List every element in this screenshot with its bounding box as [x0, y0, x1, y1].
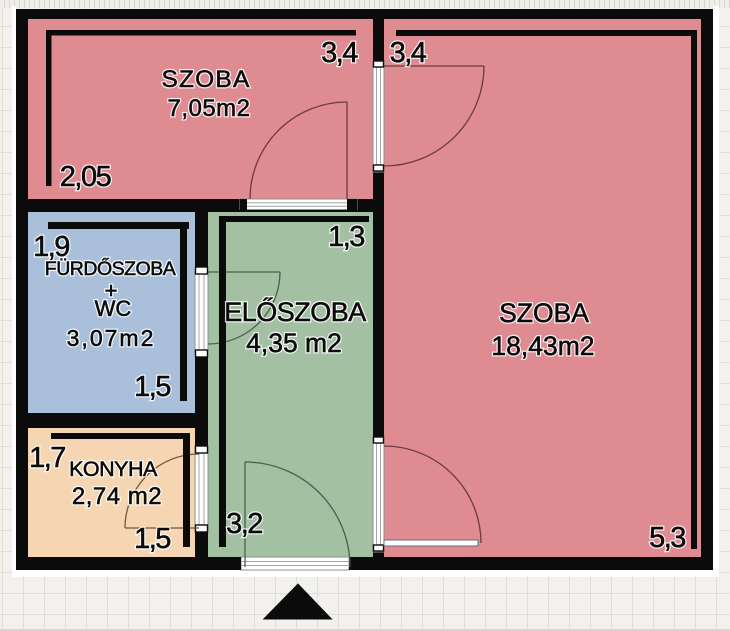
- svg-text:WC: WC: [95, 296, 132, 321]
- svg-text:3,4: 3,4: [321, 37, 358, 69]
- svg-text:3,4: 3,4: [390, 37, 427, 69]
- svg-text:KONYHA: KONYHA: [69, 457, 158, 481]
- svg-text:2,74 m2: 2,74 m2: [72, 483, 162, 510]
- svg-text:4,35 m2: 4,35 m2: [246, 328, 342, 358]
- svg-text:1,5: 1,5: [134, 523, 170, 555]
- svg-text:2,05: 2,05: [60, 161, 111, 193]
- svg-text:3,2: 3,2: [226, 508, 262, 540]
- svg-text:18,43m2: 18,43m2: [491, 331, 594, 361]
- svg-text:SZOBA: SZOBA: [161, 66, 250, 93]
- svg-text:ELŐSZOBA: ELŐSZOBA: [224, 296, 366, 327]
- svg-text:7,05m2: 7,05m2: [167, 95, 250, 122]
- svg-text:1,3: 1,3: [328, 221, 364, 253]
- svg-text:FÜRDŐSZOBA: FÜRDŐSZOBA: [45, 257, 176, 280]
- svg-text:SZOBA: SZOBA: [499, 298, 589, 328]
- svg-text:5,3: 5,3: [649, 522, 685, 554]
- svg-text:3,07m2: 3,07m2: [67, 325, 156, 351]
- svg-text:1,5: 1,5: [134, 371, 170, 403]
- svg-text:1,7: 1,7: [29, 442, 65, 474]
